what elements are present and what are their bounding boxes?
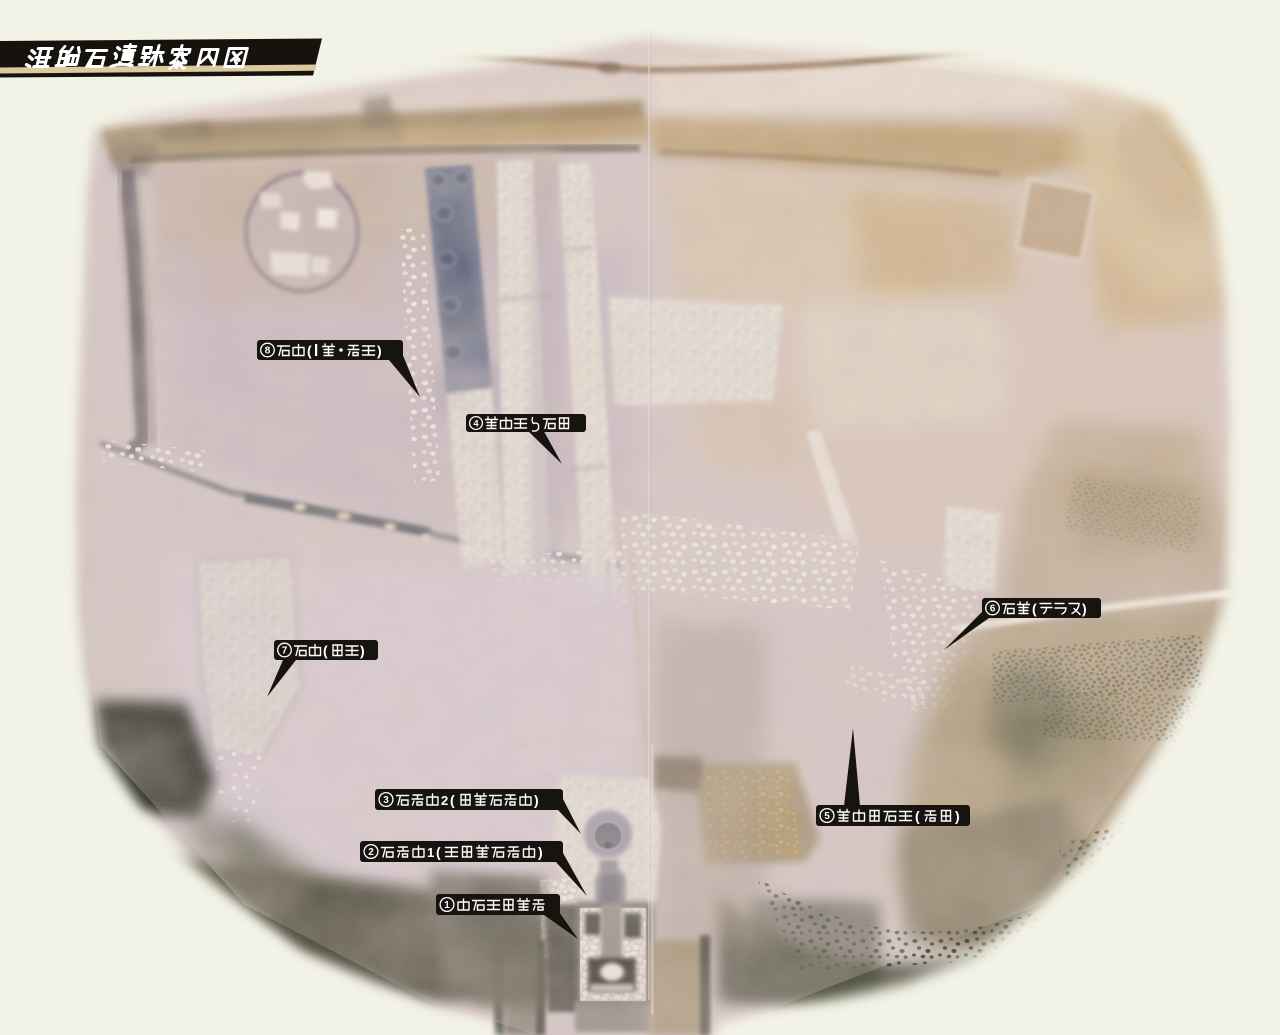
svg-text:(: (: [915, 808, 920, 824]
svg-text:(: (: [307, 343, 312, 359]
svg-text:): ): [360, 643, 365, 659]
svg-text:(: (: [436, 844, 441, 860]
svg-text:1: 1: [444, 900, 450, 911]
svg-text:3: 3: [383, 795, 389, 806]
svg-text:): ): [534, 792, 539, 808]
svg-text:8: 8: [265, 346, 271, 357]
svg-text:): ): [1082, 601, 1087, 617]
svg-text:): ): [377, 343, 382, 359]
svg-text:4: 4: [473, 418, 479, 429]
svg-text:): ): [955, 808, 960, 824]
svg-text:2: 2: [368, 847, 374, 858]
svg-text:2: 2: [441, 793, 448, 808]
svg-text:): ): [538, 844, 543, 860]
svg-text:(: (: [450, 792, 455, 808]
svg-text:(: (: [1032, 601, 1037, 617]
svg-text:7: 7: [282, 646, 288, 657]
svg-text:5: 5: [824, 811, 830, 822]
svg-text:1: 1: [427, 845, 434, 860]
svg-text:(: (: [323, 643, 328, 659]
svg-text:6: 6: [990, 604, 996, 615]
